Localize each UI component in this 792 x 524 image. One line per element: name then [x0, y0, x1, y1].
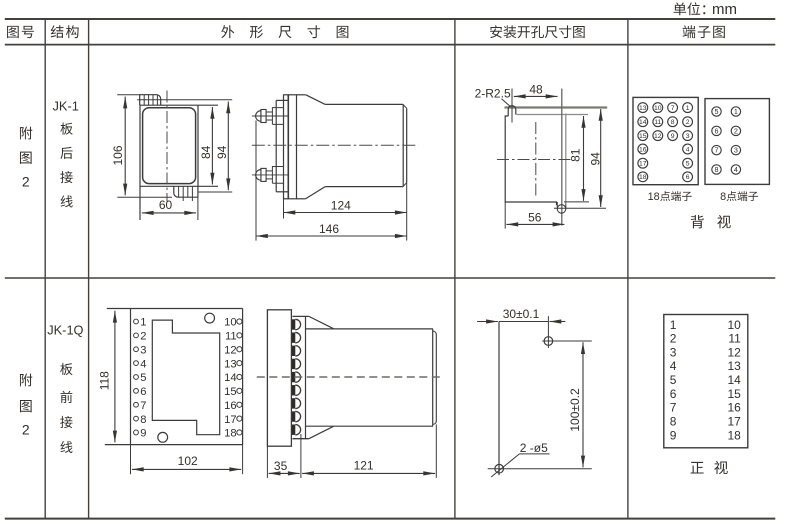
svg-text:18: 18	[224, 428, 236, 440]
svg-text:14: 14	[224, 372, 236, 384]
svg-text:18: 18	[639, 174, 647, 181]
svg-text:1: 1	[140, 317, 146, 329]
svg-text:mm: mm	[712, 1, 737, 18]
svg-text:16: 16	[727, 401, 741, 415]
svg-text:3: 3	[670, 345, 677, 359]
svg-text:18: 18	[727, 428, 741, 442]
svg-text:4: 4	[734, 165, 738, 174]
svg-text:15: 15	[224, 386, 236, 398]
svg-text:1: 1	[670, 318, 677, 332]
svg-text:94: 94	[588, 152, 602, 166]
svg-text:13: 13	[727, 359, 741, 373]
svg-text:11: 11	[225, 331, 237, 343]
svg-text:5: 5	[140, 372, 146, 384]
svg-text:14: 14	[727, 373, 741, 387]
svg-text:15: 15	[639, 133, 647, 140]
svg-text:17: 17	[727, 415, 741, 429]
svg-text:10: 10	[654, 105, 662, 112]
svg-text:30±0.1: 30±0.1	[503, 307, 540, 321]
svg-text:35: 35	[274, 459, 288, 473]
svg-text:56: 56	[528, 210, 542, 224]
svg-text:10: 10	[727, 318, 741, 332]
svg-text:6: 6	[670, 387, 677, 401]
svg-text:13: 13	[224, 358, 236, 370]
svg-text:8: 8	[670, 415, 677, 429]
svg-text:16: 16	[224, 400, 236, 412]
svg-text:4: 4	[670, 359, 677, 373]
svg-text:12: 12	[727, 345, 741, 359]
svg-text:7: 7	[140, 400, 146, 412]
svg-text:9: 9	[670, 428, 677, 442]
svg-text:2 -ø5: 2 -ø5	[520, 441, 548, 455]
svg-text:94: 94	[215, 145, 229, 159]
svg-text:121: 121	[354, 458, 374, 472]
svg-text:100±0.2: 100±0.2	[568, 388, 582, 432]
svg-text:8: 8	[715, 165, 719, 174]
svg-text:2: 2	[686, 119, 690, 126]
svg-text:14: 14	[639, 119, 647, 126]
svg-text:2: 2	[22, 422, 30, 438]
svg-text:118: 118	[97, 371, 111, 390]
svg-text:1: 1	[734, 107, 738, 116]
svg-text:9: 9	[140, 428, 146, 440]
svg-text:11: 11	[654, 119, 661, 126]
svg-text:7: 7	[715, 146, 719, 155]
svg-text:11: 11	[728, 332, 741, 346]
svg-text:13: 13	[639, 105, 647, 112]
svg-text:6: 6	[715, 126, 719, 135]
svg-text:18: 18	[648, 191, 660, 203]
svg-text:2-R2.5: 2-R2.5	[475, 86, 511, 100]
svg-text:2: 2	[22, 174, 30, 190]
svg-text:106: 106	[111, 145, 125, 165]
svg-text:102: 102	[178, 454, 198, 468]
svg-text:84: 84	[199, 145, 213, 159]
svg-text:3: 3	[734, 146, 738, 155]
svg-text:48: 48	[529, 83, 543, 97]
svg-text:7: 7	[671, 105, 675, 112]
svg-text:12: 12	[654, 133, 662, 140]
svg-text:60: 60	[159, 198, 173, 212]
svg-text:15: 15	[727, 387, 741, 401]
svg-text:10: 10	[224, 317, 236, 329]
svg-text:81: 81	[569, 148, 583, 162]
svg-text:2: 2	[670, 332, 677, 346]
svg-text:5: 5	[686, 161, 690, 168]
svg-text:8: 8	[720, 191, 726, 203]
svg-text:6: 6	[140, 386, 146, 398]
svg-text:4: 4	[686, 146, 690, 153]
svg-text:9: 9	[671, 133, 675, 140]
svg-text:5: 5	[670, 373, 677, 387]
svg-text:8: 8	[140, 414, 146, 426]
svg-text:2: 2	[140, 331, 146, 343]
svg-text:12: 12	[224, 344, 236, 356]
svg-text:JK-1Q: JK-1Q	[47, 322, 83, 337]
svg-text:8: 8	[671, 119, 675, 126]
svg-text:1: 1	[686, 105, 690, 112]
svg-text:124: 124	[331, 198, 351, 212]
svg-text:5: 5	[715, 107, 719, 116]
svg-text:4: 4	[140, 358, 146, 370]
svg-text:17: 17	[639, 161, 647, 168]
svg-text:JK-1: JK-1	[53, 98, 79, 113]
svg-text:2: 2	[734, 126, 738, 135]
svg-text:3: 3	[686, 133, 690, 140]
svg-text:16: 16	[639, 146, 647, 153]
svg-text:3: 3	[140, 344, 146, 356]
svg-text:17: 17	[224, 414, 236, 426]
svg-text:146: 146	[319, 222, 339, 236]
svg-text:7: 7	[670, 401, 677, 415]
svg-text:6: 6	[686, 174, 690, 181]
